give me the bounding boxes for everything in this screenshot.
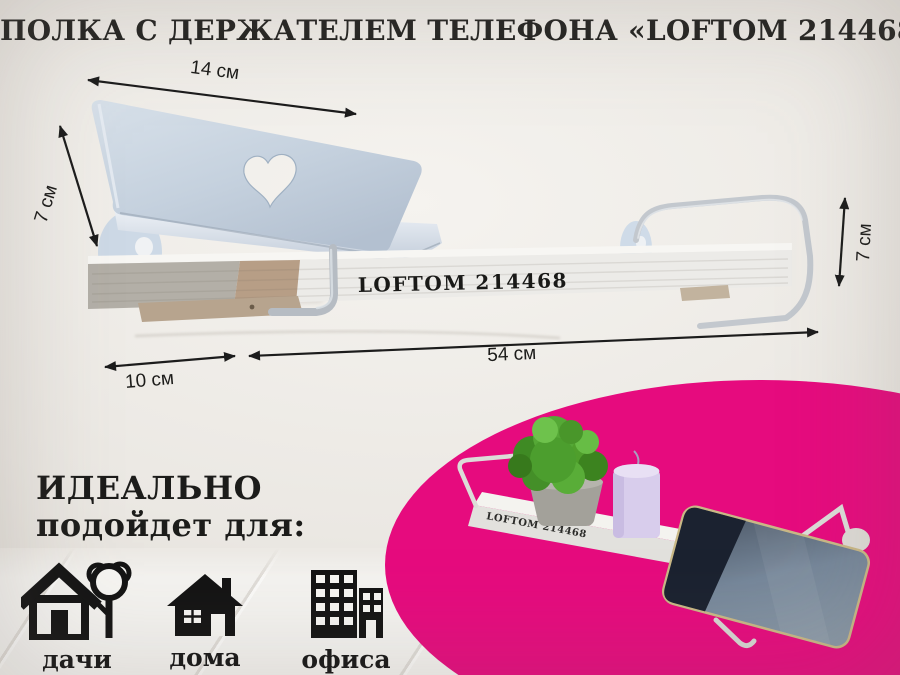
arrow-holder-height-right (839, 198, 845, 286)
use-case-dacha: дачи (18, 560, 136, 674)
shelf-with-phone-holder-photo: LOFTOM 214468 (88, 100, 810, 338)
ideal-heading-line2: подойдет для: (36, 507, 306, 544)
use-case-label: офиса (301, 645, 390, 674)
dim-holder-width: 14 см (189, 57, 240, 84)
cottage-with-tree-icon (21, 560, 133, 640)
dim-shelf-length: 54 см (487, 343, 537, 366)
page-title: ПОЛКА С ДЕРЖАТЕЛЕМ ТЕЛЕФОНА «LOFTOM 2144… (0, 14, 900, 47)
shelf-brand-text: LOFTOM 214468 (358, 268, 569, 297)
use-case-home: дома (165, 572, 245, 672)
arrow-shelf-depth (105, 356, 235, 367)
use-case-office: офиса (303, 566, 389, 674)
use-case-label: дома (169, 643, 240, 672)
ideal-heading: ИДЕАЛЬНО подойдет для: (36, 470, 306, 544)
dim-holder-height-left: 7 см (31, 183, 62, 226)
house-icon (167, 572, 243, 638)
use-case-label: дачи (42, 645, 112, 674)
ideal-heading-line1: ИДЕАЛЬНО (36, 470, 306, 507)
product-banner: LOFTOM 214468 14 см 7 см 7 см (0, 0, 900, 675)
mount-hole-left (135, 237, 153, 257)
dim-shelf-depth: 10 см (124, 368, 175, 393)
dim-holder-height-right: 7 см (853, 223, 876, 262)
office-building-icon (305, 566, 387, 640)
arrow-holder-height-left (60, 126, 97, 246)
